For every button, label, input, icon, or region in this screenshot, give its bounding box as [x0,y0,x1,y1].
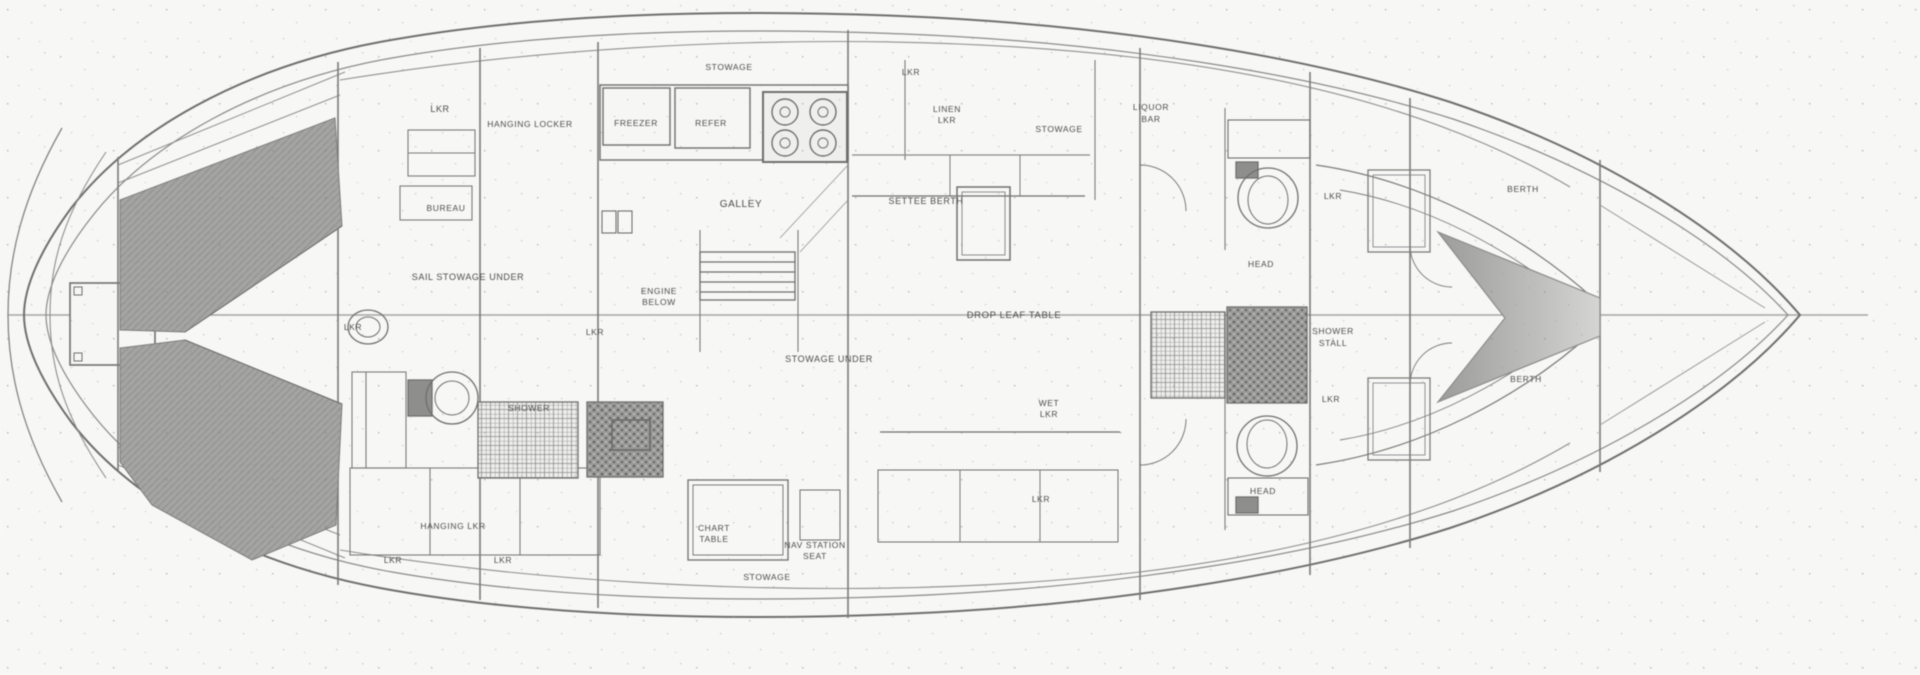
boat-floor-plan-sheet: LKRHANGING LOCKERFREEZERREFERSTOWAGEGALL… [0,0,1920,675]
scan-noise-overlay [0,0,1920,675]
boat-floor-plan-drawing: LKRHANGING LOCKERFREEZERREFERSTOWAGEGALL… [0,0,1920,675]
